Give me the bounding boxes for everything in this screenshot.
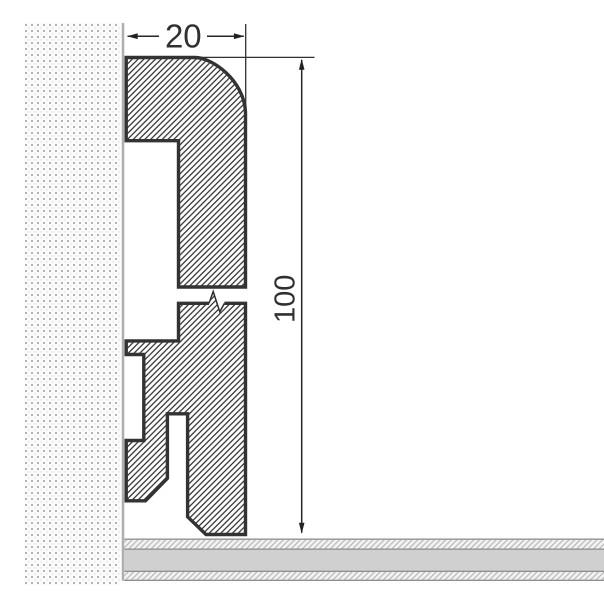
svg-text:100: 100: [270, 275, 302, 323]
svg-text:20: 20: [165, 17, 202, 54]
